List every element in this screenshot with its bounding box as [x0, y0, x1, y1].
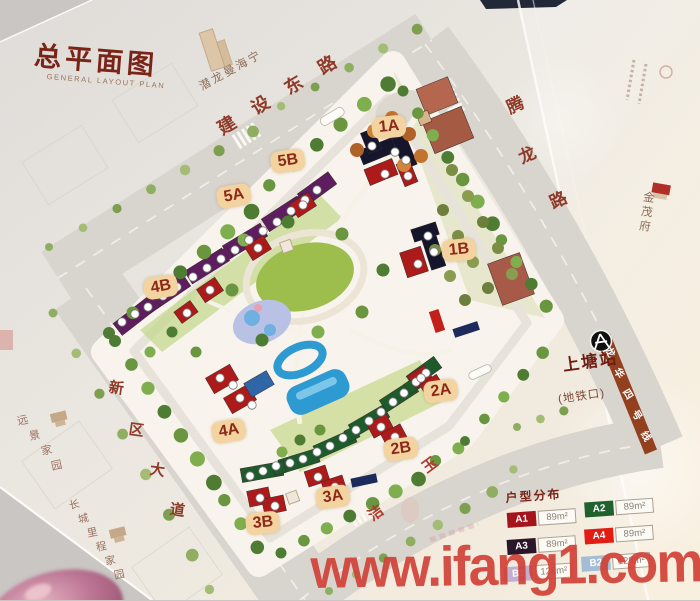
legend-item-A2: A2 89m²	[584, 498, 654, 518]
legend-color-A1: A1	[507, 511, 537, 528]
legend-area-A2: 89m²	[615, 498, 654, 516]
building-label-1A: 1A	[371, 114, 408, 139]
legend-item-A1: A1 89m²	[507, 508, 577, 528]
legend-area-A1: 89m²	[538, 508, 577, 526]
neighbor-label-changcheng: 城	[77, 510, 90, 527]
road-label-xinqu: 区	[128, 418, 146, 441]
neighbor-building-icon-partial	[0, 330, 13, 350]
neighbor-label-changcheng: 程	[95, 538, 108, 555]
road-label-xinqu: 大	[149, 458, 167, 481]
brochure-photo: 总平面图 GENERAL LAYOUT PLAN 潜龙曼海宁 金茂府 建设东路 …	[0, 0, 700, 600]
building-label-1B: 1B	[441, 237, 478, 262]
neighbor-label-changcheng: 家	[104, 552, 117, 569]
road-label-xinqu: 新	[108, 376, 126, 399]
legend-color-A2: A2	[584, 500, 614, 517]
watermark-text: www.ifang1.com	[310, 529, 700, 601]
building-label-3B: 3B	[245, 510, 282, 535]
road-label-xinqu: 道	[169, 498, 187, 521]
neighbor-label-changcheng: 长	[68, 496, 81, 513]
